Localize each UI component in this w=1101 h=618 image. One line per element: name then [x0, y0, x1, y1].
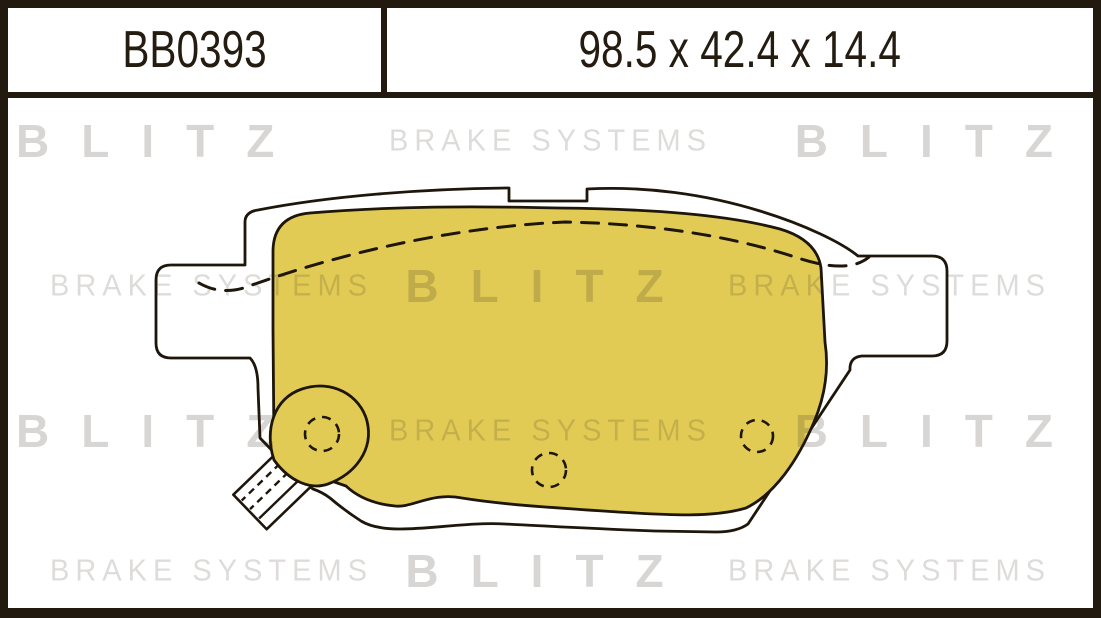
brake-pad-drawing	[0, 0, 1101, 618]
friction-pad	[273, 207, 827, 515]
catalog-card: BB0393 98.5 x 42.4 x 14.4 BLITZ BRAKE SY…	[0, 0, 1101, 618]
